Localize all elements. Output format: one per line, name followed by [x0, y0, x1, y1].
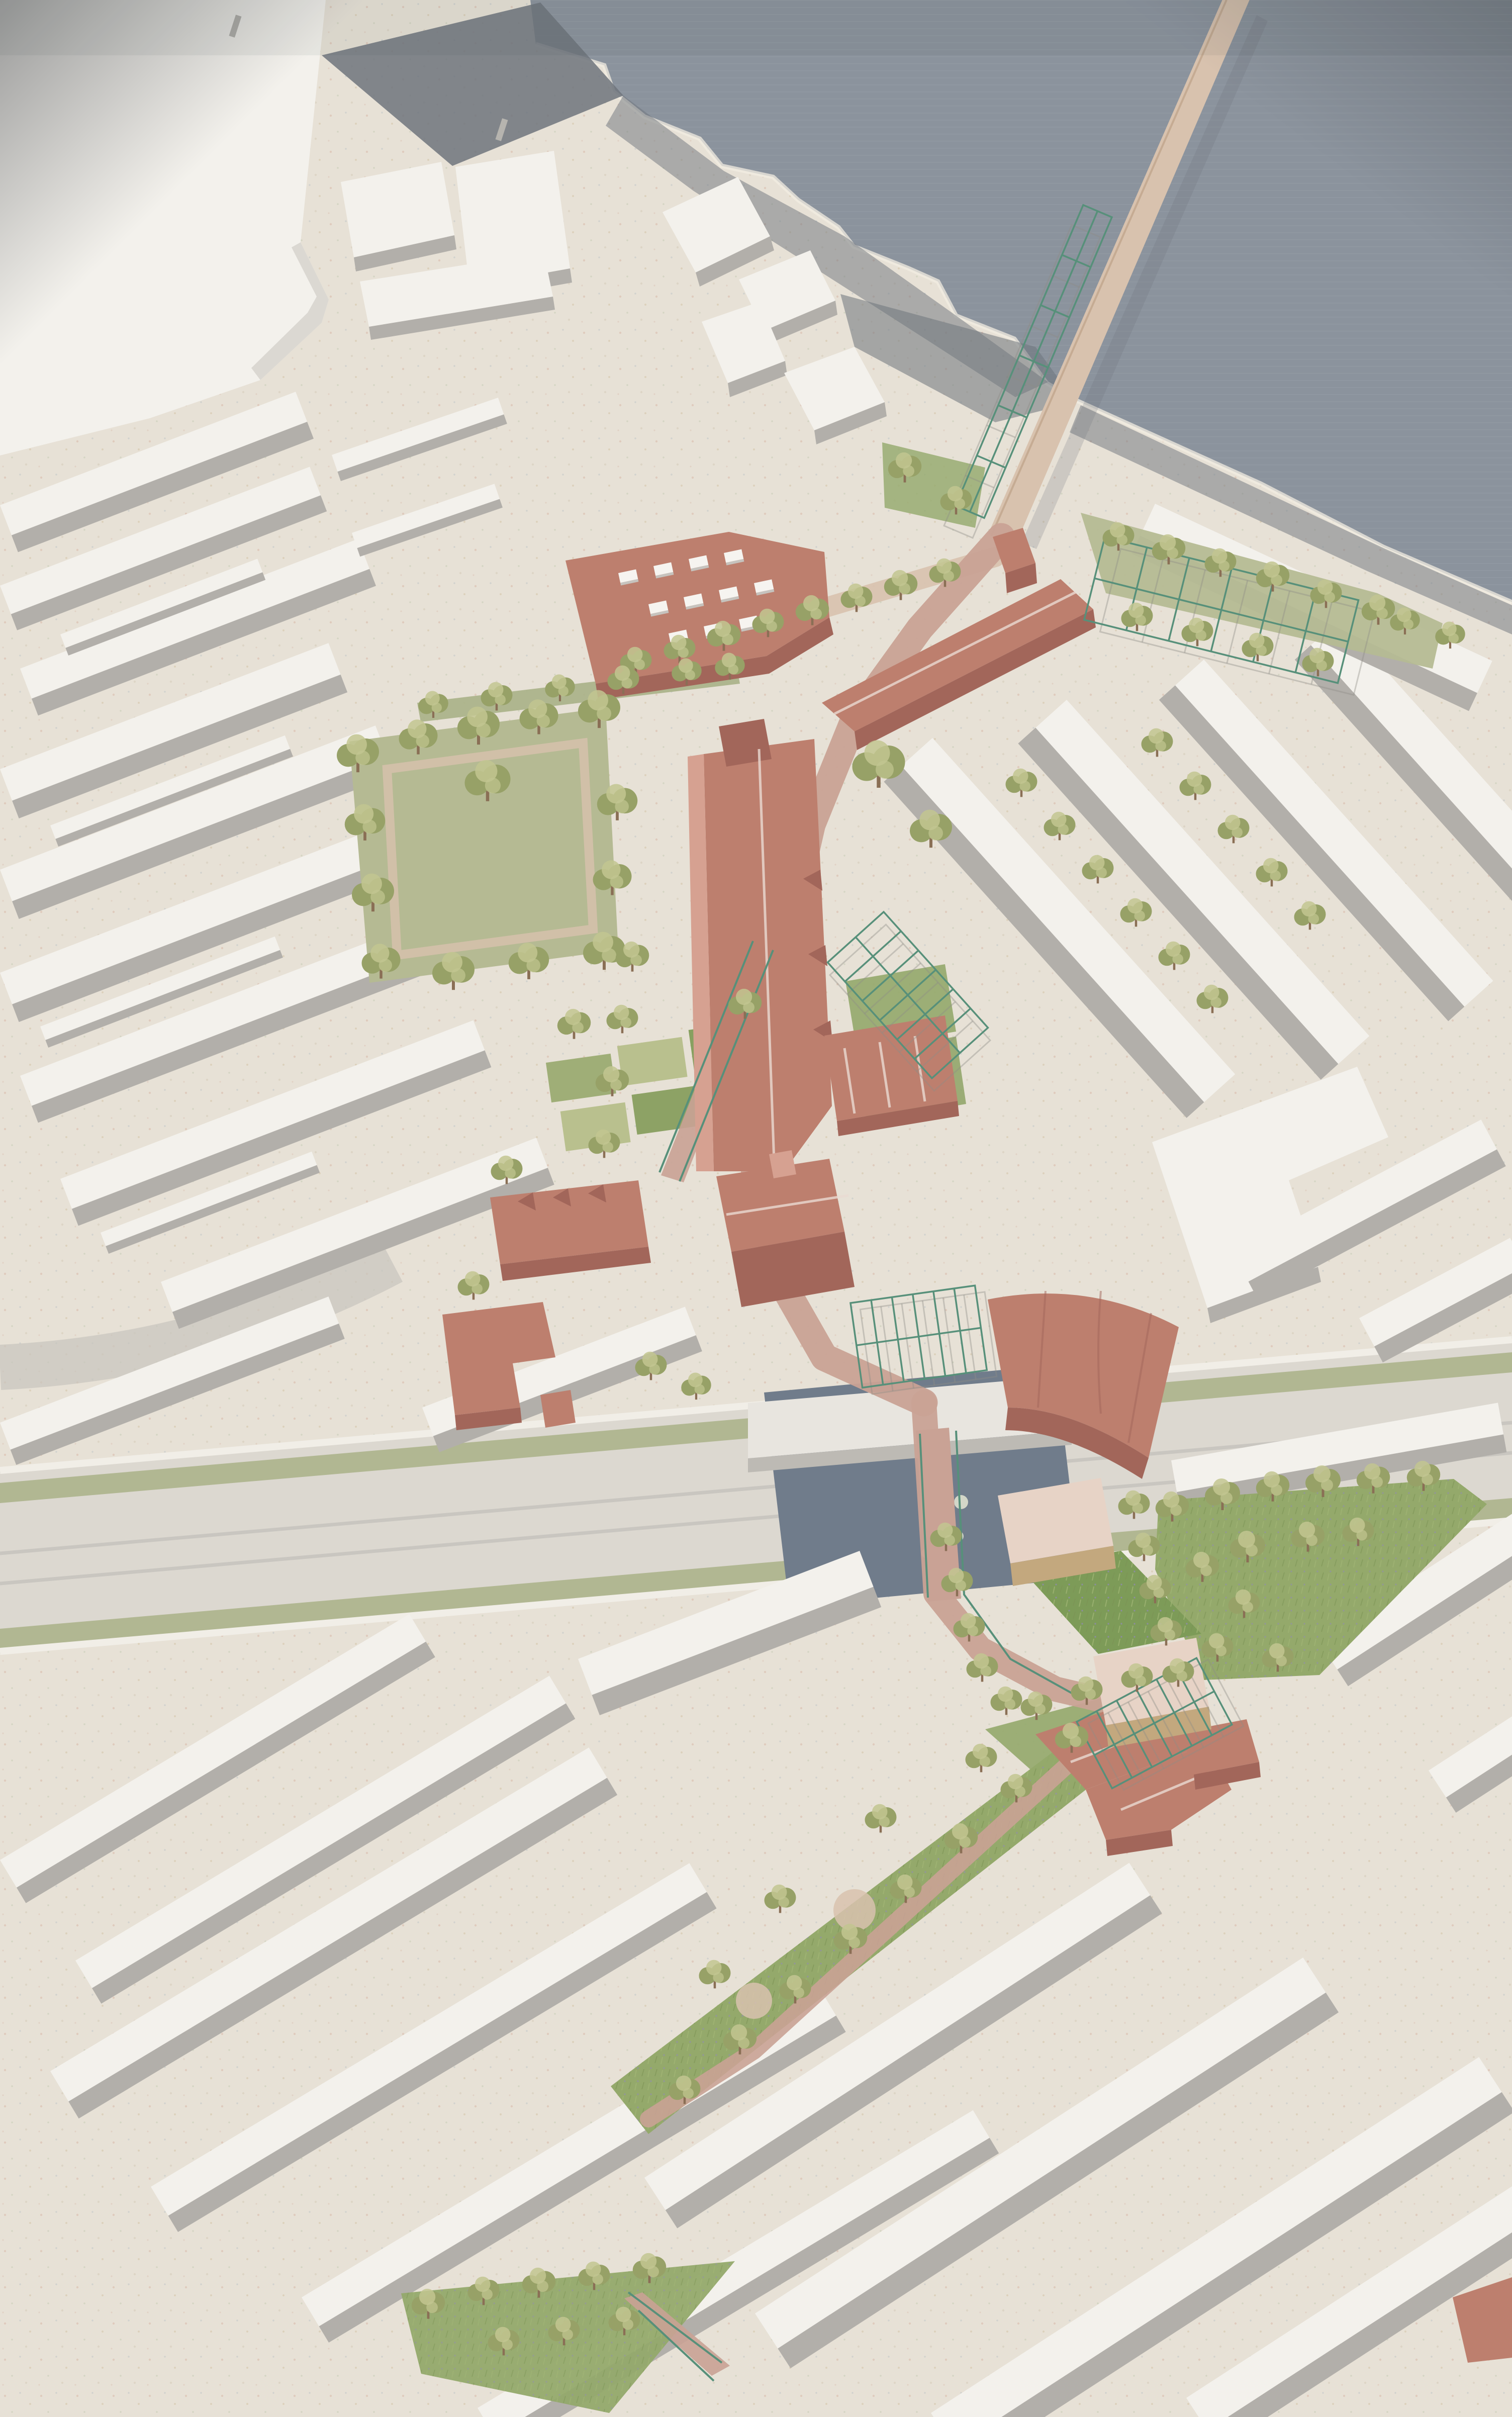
church-tower — [769, 1150, 796, 1178]
masterplan-svg: Aerial axonometric masterplan rendering … — [0, 0, 1512, 2417]
garden-clearing — [736, 1983, 772, 2019]
spine-tower — [719, 719, 772, 767]
lily-pad — [954, 1495, 968, 1509]
vignette-top-left — [0, 0, 653, 654]
vignette-top-right — [855, 0, 1512, 503]
garden-clearing — [833, 1889, 876, 1931]
masterplan-rendering: Aerial axonometric masterplan rendering … — [0, 0, 1512, 2417]
vignette-top-edge — [0, 0, 1512, 55]
red-kiosk — [540, 1390, 576, 1428]
spine-building — [688, 719, 832, 1171]
